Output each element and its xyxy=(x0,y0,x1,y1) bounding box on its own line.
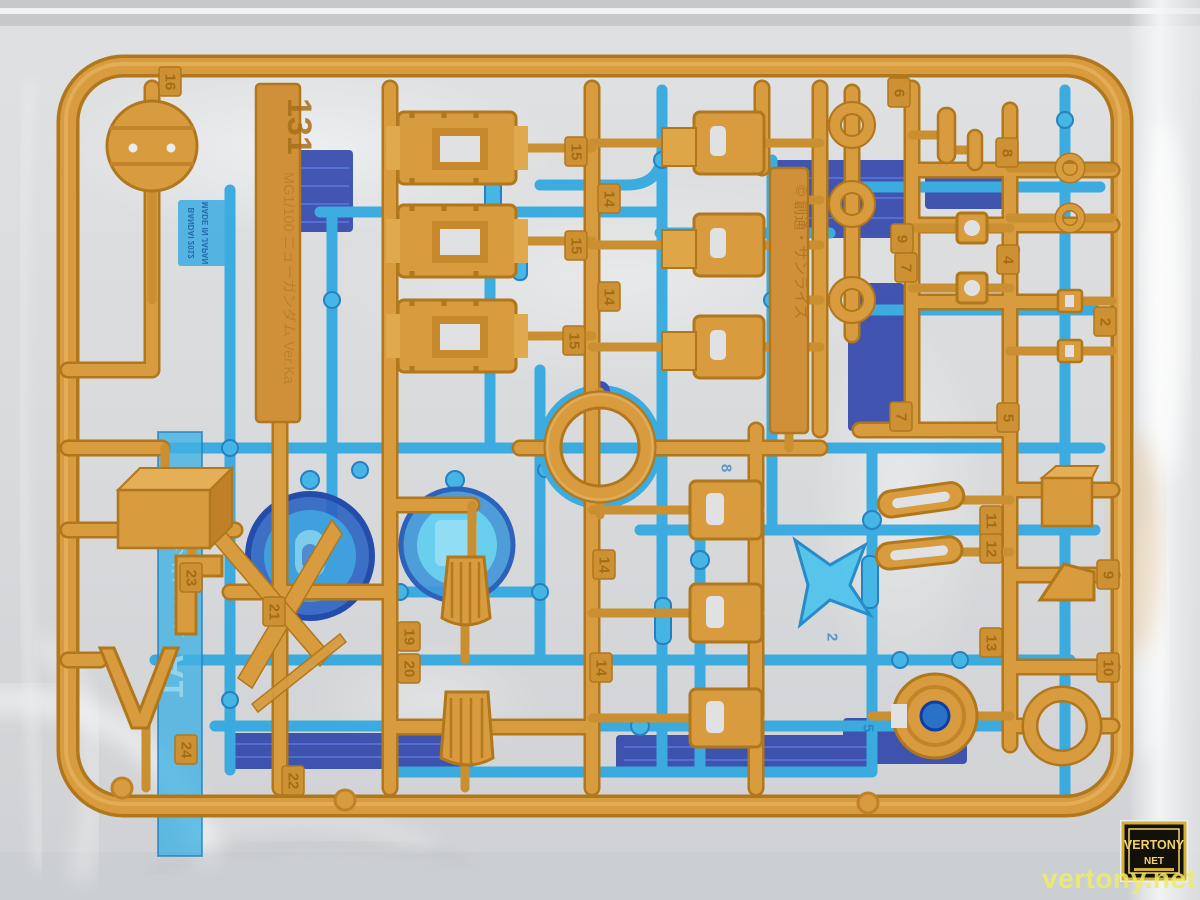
buckle-parts-lower xyxy=(690,481,762,747)
part-number-tab: 21 xyxy=(263,597,285,626)
part-number-tab: 15 xyxy=(565,137,587,166)
svg-text:16: 16 xyxy=(162,74,179,91)
head-disc-part xyxy=(107,101,197,191)
svg-text:15: 15 xyxy=(568,144,585,161)
box-part-right xyxy=(1042,466,1098,526)
copyright-tag: © 創通・サンライズ xyxy=(770,168,809,433)
part-number-tab: 15 xyxy=(563,326,585,355)
svg-text:9: 9 xyxy=(1100,571,1117,579)
part-number-tab: 8 xyxy=(996,138,1018,167)
svg-text:19: 19 xyxy=(401,629,418,646)
part-number-tab: 11 xyxy=(980,506,1002,535)
part-number-tab: 10 xyxy=(1097,653,1119,682)
part-number-tab: 20 xyxy=(398,654,420,683)
svg-text:5: 5 xyxy=(1000,414,1017,422)
box-part-left xyxy=(118,468,232,548)
part-number-tab: 9 xyxy=(891,224,913,253)
svg-text:20: 20 xyxy=(401,661,418,678)
part-number-tab: 9 xyxy=(1097,560,1119,589)
svg-text:14: 14 xyxy=(601,289,618,306)
runner-id-number: 131 xyxy=(280,98,318,155)
paddle-part-1 xyxy=(442,557,490,625)
window-frame-parts xyxy=(386,112,528,372)
svg-text:15: 15 xyxy=(568,238,585,255)
gunpla-runner-bag-photo: ニューガンダム Ver.Ka A1 BANDAI 2012 MADE IN JA… xyxy=(0,0,1200,900)
part-number-tab: 13 xyxy=(980,628,1002,657)
mold-stamp-plate: BANDAI 2012 MADE IN JAPAN xyxy=(178,200,226,266)
svg-text:24: 24 xyxy=(178,742,195,759)
part-number-tab: 14 xyxy=(598,282,620,311)
svg-text:14: 14 xyxy=(593,660,610,677)
part-number-tab: 14 xyxy=(598,184,620,213)
watermark-badge-top: VERTONY xyxy=(1124,838,1185,852)
svg-text:13: 13 xyxy=(983,635,1000,652)
disc-with-hole-part xyxy=(891,674,977,758)
svg-text:6: 6 xyxy=(891,89,908,97)
part-number-tab: 8 xyxy=(718,464,735,472)
part-number-tab: 15 xyxy=(565,231,587,260)
part-number-tab: 6 xyxy=(888,78,910,107)
part-number-tab: 7 xyxy=(895,253,917,282)
svg-text:2: 2 xyxy=(1097,318,1114,326)
part-number-tab: 16 xyxy=(159,67,181,96)
svg-text:5: 5 xyxy=(860,724,877,732)
svg-text:14: 14 xyxy=(596,557,613,574)
part-number-tab: 2 xyxy=(824,633,841,641)
svg-text:7: 7 xyxy=(893,413,910,421)
part-number-tab: 23 xyxy=(180,563,202,592)
svg-text:14: 14 xyxy=(601,191,618,208)
svg-text:10: 10 xyxy=(1100,660,1117,677)
mold-stamp-line2: MADE IN JAPAN xyxy=(201,202,210,265)
svg-text:2: 2 xyxy=(824,633,841,641)
svg-text:11: 11 xyxy=(983,513,1000,529)
svg-text:23: 23 xyxy=(183,570,200,587)
svg-text:15: 15 xyxy=(566,333,583,350)
mold-stamp-line1: BANDAI 2012 xyxy=(187,207,196,259)
part-number-tab: 2 xyxy=(1094,307,1116,336)
copyright-text: © 創通・サンライズ xyxy=(792,185,809,320)
paddle-part-2 xyxy=(441,692,493,765)
svg-text:12: 12 xyxy=(983,541,1000,558)
buckle-parts-upper xyxy=(662,112,764,378)
part-number-tab: 14 xyxy=(590,653,612,682)
photo-canvas: ニューガンダム Ver.Ka A1 BANDAI 2012 MADE IN JA… xyxy=(0,0,1200,900)
svg-text:21: 21 xyxy=(266,604,283,621)
part-number-tab: 12 xyxy=(980,534,1002,563)
part-number-tab: 4 xyxy=(997,245,1019,274)
part-number-tab: 5 xyxy=(997,403,1019,432)
svg-text:8: 8 xyxy=(999,149,1016,157)
part-number-tab: 7 xyxy=(890,402,912,431)
part-number-tab: 5 xyxy=(860,724,877,732)
part-number-tab: 14 xyxy=(593,550,615,579)
svg-text:7: 7 xyxy=(898,264,915,272)
part-number-tab: 22 xyxy=(282,766,304,795)
watermark-text: vertony.net xyxy=(1042,863,1196,894)
runner-id-name: MG1/100 ニューガンダム Ver.Ka xyxy=(280,172,297,385)
svg-text:4: 4 xyxy=(1000,256,1017,265)
svg-text:8: 8 xyxy=(718,464,735,472)
svg-text:22: 22 xyxy=(285,773,302,790)
part-number-tab: 24 xyxy=(175,735,197,764)
part-number-tab: 19 xyxy=(398,622,420,651)
svg-text:9: 9 xyxy=(894,235,911,243)
